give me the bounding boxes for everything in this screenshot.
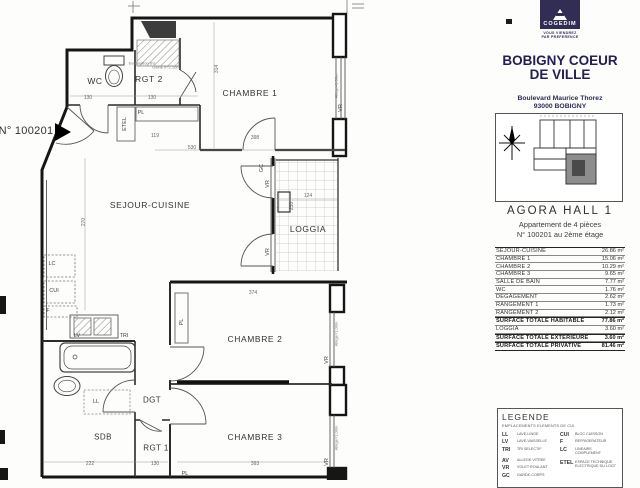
plan-label: LV bbox=[74, 333, 80, 339]
plan-label: LL bbox=[93, 399, 99, 405]
surface-table: SEJOUR-CUISINE 26.86 m² CHAMBRE 1 15.06 … bbox=[495, 247, 625, 351]
legend-desc: ALLEGE VITREE bbox=[517, 458, 546, 464]
surface-row: DEGAGEMENT 2.62 m² bbox=[495, 294, 625, 302]
plan-label: 530 bbox=[188, 145, 196, 151]
surface-label: SURFACE TOTALE EXTERIEURE bbox=[496, 335, 588, 341]
surface-row: CHAMBRE 3 9.65 m² bbox=[495, 271, 625, 279]
legend-item: LL LAVE-LINGE bbox=[502, 432, 560, 438]
plan-label: DGT bbox=[143, 396, 161, 405]
legend-item: LV LAVE-VAISSELLE bbox=[502, 439, 560, 445]
plan-label: PL bbox=[182, 471, 189, 477]
plan-label: SDB bbox=[94, 433, 112, 442]
surface-value: 26.86 m² bbox=[602, 248, 624, 254]
plan-label: VR bbox=[324, 458, 330, 466]
legend-abbr: F bbox=[560, 439, 575, 445]
plan-label: 119 bbox=[151, 133, 159, 139]
legend-abbr: LC bbox=[560, 447, 575, 456]
plan-label: CUI bbox=[49, 288, 58, 294]
surface-label: DEGAGEMENT bbox=[496, 294, 538, 300]
legend-abbr: VR bbox=[502, 465, 517, 471]
plan-label: VR bbox=[265, 180, 271, 188]
plan-label: 124 bbox=[304, 193, 312, 199]
plan-label: 270 bbox=[81, 218, 87, 226]
surface-row: SURFACE TOTALE HABITABLE 77.86 m² bbox=[495, 317, 625, 326]
plan-label: LC bbox=[48, 261, 55, 267]
plan-label: VR bbox=[265, 248, 271, 256]
plan-label: 398 bbox=[251, 135, 259, 141]
legend-desc: TRI SELECTIF bbox=[517, 447, 542, 453]
legend-item: LC LINEAIRE COMPLEMENT bbox=[560, 447, 618, 456]
surface-value: 77.86 m² bbox=[602, 318, 624, 324]
plan-label: 393 bbox=[251, 461, 259, 467]
surface-label: SALLE DE BAIN bbox=[496, 279, 540, 285]
legend-title: LEGENDE bbox=[502, 412, 618, 422]
surface-row: RANGEMENT 2 2.12 m² bbox=[495, 310, 625, 318]
legend-item: AV ALLEGE VITREE bbox=[502, 458, 560, 464]
surface-value: 7.77 m² bbox=[605, 279, 624, 285]
legend-item: VR VOLET ROULANT bbox=[502, 465, 560, 471]
legend-abbr: GC bbox=[502, 473, 517, 479]
plan-label: PL bbox=[179, 319, 185, 326]
plan-label: F bbox=[46, 308, 49, 314]
legend-abbr: LV bbox=[502, 439, 517, 445]
surface-row: SURFACE TOTALE PRIVATIVE 81.46 m² bbox=[495, 342, 625, 351]
surface-label: SEJOUR-CUISINE bbox=[496, 248, 546, 254]
plan-label: PL bbox=[138, 110, 145, 116]
surface-label: RANGEMENT 2 bbox=[496, 310, 539, 316]
legend-abbr: TRI bbox=[502, 447, 517, 453]
surface-value: 15.06 m² bbox=[602, 256, 624, 262]
plan-label: VR bbox=[324, 356, 330, 364]
legend-left-column: LL LAVE-LINGE LV LAVE-VAISSELLE TRI TRI … bbox=[502, 430, 560, 479]
plan-label: GC bbox=[259, 164, 265, 172]
surface-label: CHAMBRE 1 bbox=[496, 256, 530, 262]
legend-item: ETEL ESPACE TECHNIQUE ELECTRIQUE DU LOGT bbox=[560, 460, 618, 469]
surface-label: WC bbox=[496, 287, 506, 293]
plan-label: CHAMBRE 2 bbox=[228, 334, 283, 344]
legend-right-column: CUI BLOC CUISSON F REFRIGERATEUR LC LINE… bbox=[560, 430, 618, 479]
apartment-floor: N° 100201 au 2ème étage bbox=[495, 230, 625, 239]
surface-label: LOGGIA bbox=[496, 326, 519, 332]
highlighted-unit-core bbox=[572, 160, 585, 176]
surface-row: SEJOUR-CUISINE 26.86 m² bbox=[495, 248, 625, 256]
surface-value: 3.60 m² bbox=[605, 335, 624, 341]
surface-value: 1.73 m² bbox=[605, 302, 624, 308]
plan-label: CHAMBRE 3 bbox=[228, 432, 283, 442]
legend-subtitle: EMPLACEMENTS ELEMENTS DE CUI. bbox=[502, 424, 618, 428]
plan-label: RGT 1 bbox=[143, 444, 168, 453]
scan-artifact bbox=[506, 19, 512, 24]
plan-label: 374 bbox=[249, 290, 257, 296]
compass-north bbox=[509, 126, 515, 145]
legend-desc: ESPACE TECHNIQUE ELECTRIQUE DU LOGT bbox=[575, 460, 618, 469]
surface-row: LOGGIA 3.60 m² bbox=[495, 326, 625, 334]
surface-row: RANGEMENT 1 1.73 m² bbox=[495, 302, 625, 310]
legend-desc: REFRIGERATEUR bbox=[575, 439, 606, 445]
surface-row: CHAMBRE 2 10.29 m² bbox=[495, 263, 625, 271]
legend-item: CUI BLOC CUISSON bbox=[560, 432, 618, 438]
brand-logo: COGEDIM VOUS VIENDREZ PAR PREFERENCE bbox=[525, 0, 595, 40]
plan-label: SEJOUR-CUISINE bbox=[110, 200, 190, 210]
surface-value: 3.60 m² bbox=[605, 326, 624, 332]
surface-value: 10.29 m² bbox=[602, 264, 624, 270]
legend-desc: BLOC CUISSON bbox=[575, 432, 603, 438]
plan-label: TRI bbox=[120, 333, 129, 339]
plan-label: 130 bbox=[148, 95, 156, 101]
plan-label: Allège=1.00m bbox=[334, 74, 339, 99]
plan-label: Evacuation SV bbox=[129, 61, 155, 66]
legend-desc: LINEAIRE COMPLEMENT bbox=[575, 447, 618, 456]
surface-row: SALLE DE BAIN 7.77 m² bbox=[495, 279, 625, 287]
surface-label: CHAMBRE 3 bbox=[496, 271, 530, 277]
lambda-icon bbox=[553, 9, 567, 20]
plan-label: Gaine h=2.20m bbox=[152, 65, 179, 70]
plan-label: 130 bbox=[151, 461, 159, 467]
info-panel: COGEDIM VOUS VIENDREZ PAR PREFERENCE BOB… bbox=[462, 0, 640, 480]
surface-value: 2.62 m² bbox=[605, 294, 624, 300]
surface-label: RANGEMENT 1 bbox=[496, 302, 539, 308]
surface-label: CHAMBRE 2 bbox=[496, 264, 530, 270]
legend-abbr: AV bbox=[502, 458, 517, 464]
legend-abbr: ETEL bbox=[560, 460, 575, 469]
site-map bbox=[495, 113, 623, 202]
plan-label: WC bbox=[87, 76, 102, 86]
legend-item: GC GARDE-CORPS bbox=[502, 473, 560, 479]
project-title: BOBIGNY COEUR DE VILLE bbox=[495, 54, 625, 82]
surface-value: 2.12 m² bbox=[605, 310, 624, 316]
legend-desc: GARDE-CORPS bbox=[517, 473, 544, 479]
brand-name: COGEDIM bbox=[543, 21, 576, 27]
hall-name: AGORA HALL 1 bbox=[495, 205, 625, 217]
plan-label: LOGGIA bbox=[290, 224, 326, 234]
brand-tagline: VOUS VIENDREZ PAR PREFERENCE bbox=[525, 31, 595, 40]
legend-abbr: CUI bbox=[560, 432, 575, 438]
plan-label: RGT 2 bbox=[135, 74, 163, 84]
legend-desc: LAVE-VAISSELLE bbox=[517, 439, 547, 445]
apartment-type: Appartement de 4 pièces bbox=[495, 220, 625, 229]
floor-plan: N° 100201 WCRGT 2CHAMBRE 1SEJOUR-CUISINE… bbox=[0, 0, 462, 480]
legend-box: LEGENDE EMPLACEMENTS ELEMENTS DE CUI. LL… bbox=[497, 408, 623, 488]
legend-desc: LAVE-LINGE bbox=[517, 432, 538, 438]
cogedim-logo-icon: COGEDIM bbox=[540, 0, 580, 29]
legend-item: F REFRIGERATEUR bbox=[560, 439, 618, 445]
floor-plan-sheet: { "panel": { "logo": {"brand": "COGEDIM"… bbox=[0, 0, 640, 480]
plan-label: 222 bbox=[86, 461, 94, 467]
surface-row: WC 1.76 m² bbox=[495, 286, 625, 294]
plan-label: 230 bbox=[289, 202, 295, 210]
plan-label: 130 bbox=[84, 95, 92, 101]
plan-label: CHAMBRE 1 bbox=[223, 88, 278, 98]
surface-value: 81.46 m² bbox=[602, 343, 624, 349]
plan-label: ETEL bbox=[122, 117, 128, 131]
plan-label: VR bbox=[338, 104, 344, 112]
surface-row: SURFACE TOTALE EXTERIEURE 3.60 m² bbox=[495, 334, 625, 343]
plan-label: Allège=1.00m bbox=[334, 426, 339, 451]
surface-value: 9.65 m² bbox=[605, 271, 624, 277]
surface-row: CHAMBRE 1 15.06 m² bbox=[495, 256, 625, 264]
site-map-drawing bbox=[496, 114, 620, 199]
plan-label: Allège=1.00m bbox=[334, 322, 339, 347]
legend-item: TRI TRI SELECTIF bbox=[502, 447, 560, 453]
project-address: Boulevard Maurice Thorez 93000 BOBIGNY bbox=[495, 95, 625, 112]
legend-desc: VOLET ROULANT bbox=[517, 465, 548, 471]
plan-label: 314 bbox=[214, 65, 220, 73]
plan-labels: WCRGT 2CHAMBRE 1SEJOUR-CUISINELOGGIACHAM… bbox=[0, 0, 462, 480]
surface-value: 1.76 m² bbox=[605, 287, 624, 293]
legend-abbr: LL bbox=[502, 432, 517, 438]
surface-label: SURFACE TOTALE PRIVATIVE bbox=[496, 343, 581, 349]
surface-label: SURFACE TOTALE HABITABLE bbox=[496, 318, 584, 324]
